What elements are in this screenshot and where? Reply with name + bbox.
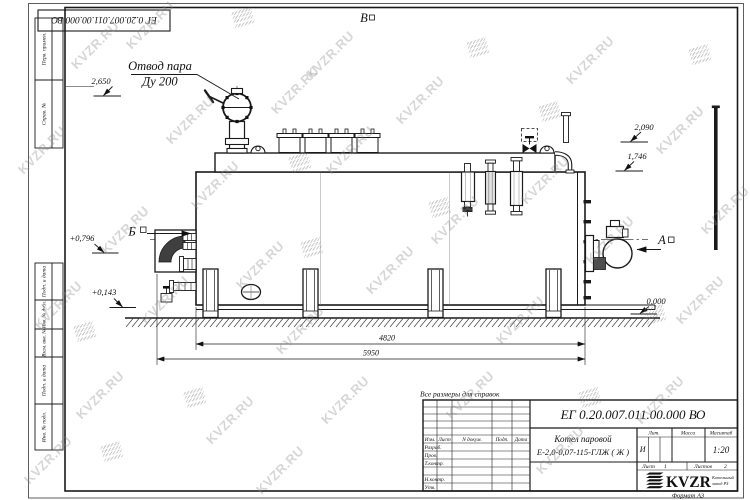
vent-pipe <box>564 116 569 143</box>
svg-text:1,746: 1,746 <box>627 151 647 161</box>
lit-value: И <box>639 445 647 454</box>
margin-boxes <box>35 18 63 450</box>
margin-label: Инв. № дубл. <box>42 301 48 329</box>
callout-line1: Отвод пара <box>128 59 192 73</box>
sheet-number: 1 <box>664 464 667 470</box>
svg-text:+0,143: +0,143 <box>92 287 117 297</box>
elevation-2650: 2,650 <box>66 76 121 96</box>
svg-text:Масштаб: Масштаб <box>709 430 733 437</box>
svg-text:2,650: 2,650 <box>91 76 111 86</box>
svg-text:Лист: Лист <box>437 437 451 443</box>
elevation-2090: 2,090 <box>621 122 655 142</box>
dim-4820: 4820 <box>379 334 395 343</box>
ground-hatch <box>126 319 655 328</box>
scale-value: 1:20 <box>713 445 730 455</box>
burner-motor <box>607 227 624 238</box>
svg-text:Листов: Листов <box>693 464 713 470</box>
svg-text:Лист: Лист <box>641 464 655 470</box>
svg-text:Котельный: Котельный <box>711 475 734 480</box>
boiler-drawing-svg: ЕГ 0.20.007.011.00.000 ВО Перв. примен. … <box>0 0 750 500</box>
safety-valve-boxes <box>277 129 380 153</box>
margin-label: Инв. № подл. <box>41 412 48 443</box>
boiler-side-view <box>125 86 720 327</box>
svg-text:Н.контр.: Н.контр. <box>424 477 446 483</box>
margin-label: Перв. примен. <box>42 33 48 67</box>
stack <box>712 106 720 251</box>
burner-fan-scroll <box>603 239 632 268</box>
svg-text:Пров.: Пров. <box>424 453 438 459</box>
svg-text:Разраб.: Разраб. <box>424 444 442 451</box>
steam-outlet-valve <box>205 89 253 154</box>
margin-label: Справ. № <box>42 103 48 125</box>
margin-labels: Перв. примен. Справ. № Подп. и дата Инв.… <box>41 33 48 444</box>
svg-text:Лит.: Лит. <box>647 431 659 437</box>
svg-text:+0,796: +0,796 <box>70 233 96 243</box>
elevation-0796: +0,796 <box>70 233 119 253</box>
elevation-0143: +0,143 <box>92 287 136 308</box>
title-block: ЕГ 0.20.007.011.00.000 ВО Котел паровой … <box>423 400 738 491</box>
dim-5950: 5950 <box>363 349 379 358</box>
top-stamp-doc-number: ЕГ 0.20.007.011.00.000 ВО <box>51 14 158 24</box>
steam-outlet-callout: Отвод пара Ду 200 <box>128 59 239 99</box>
svg-text:завод РЗ: завод РЗ <box>711 481 729 486</box>
svg-text:Масса: Масса <box>680 431 696 437</box>
svg-text:Изм.: Изм. <box>424 437 435 443</box>
margin-label: Подп. и дата <box>41 365 48 398</box>
kvzr-logo-text: KVZR <box>666 474 712 491</box>
sheets-total: 2 <box>724 464 727 470</box>
callout-line2: Ду 200 <box>141 75 178 89</box>
product-name-line1: Котел паровой <box>553 434 612 444</box>
svg-text:Подп.: Подп. <box>494 436 508 443</box>
reference-note: Все размеры для справок <box>420 390 500 399</box>
manhole <box>242 284 261 300</box>
margin-label: Подп. и дата <box>41 266 48 299</box>
margin-label: Взам. инв. № <box>42 329 48 357</box>
drawing-sheet: ЕГ 0.20.007.011.00.000 ВО Перв. примен. … <box>0 0 750 500</box>
burner <box>586 221 633 272</box>
view-a-label: А <box>657 233 666 247</box>
kvzr-logo: KVZR Котельный завод РЗ <box>646 473 734 492</box>
steam-drum <box>215 153 555 172</box>
svg-text:0,000: 0,000 <box>646 296 666 306</box>
water-level-gauges <box>462 158 523 217</box>
svg-text:Утв.: Утв. <box>425 485 436 491</box>
format-label: Формат А3 <box>672 493 705 500</box>
svg-text:Т.контр.: Т.контр. <box>425 461 444 467</box>
svg-text:2,090: 2,090 <box>634 122 654 132</box>
elevation-1746: 1,746 <box>616 151 648 171</box>
view-v-label: В <box>360 11 368 25</box>
svg-text:N докум.: N докум. <box>461 436 482 443</box>
product-name-line2: Е-2,0-0,07-115-ГЛЖ ( Ж ) <box>536 447 629 457</box>
svg-text:Дата: Дата <box>514 437 528 443</box>
doc-number: ЕГ 0.20.007.011.00.000 ВО <box>560 407 706 422</box>
view-b-label: Б <box>127 225 136 239</box>
kvzr-logo-icon <box>646 473 664 489</box>
